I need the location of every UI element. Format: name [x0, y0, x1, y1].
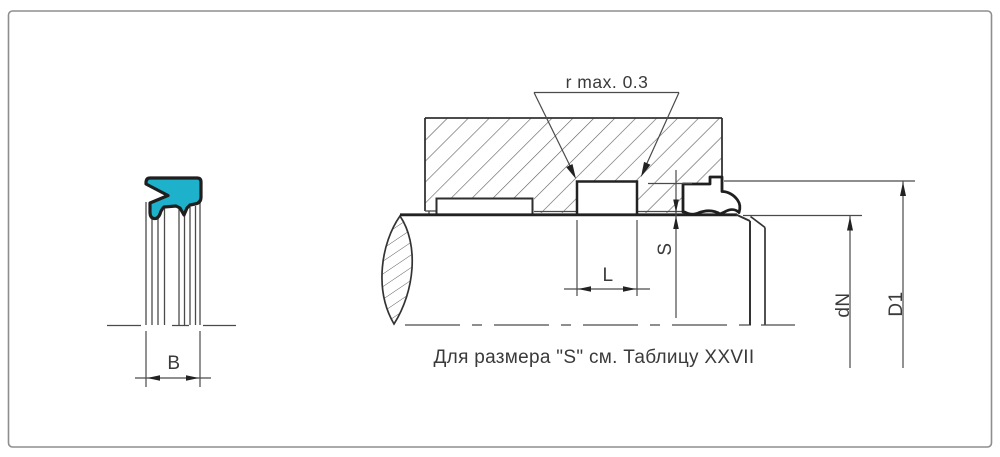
guide-strip [437, 199, 533, 215]
label-B: B [167, 353, 180, 374]
groove-outline [577, 182, 637, 215]
drawing-canvas: B [0, 0, 1000, 457]
label-S: S [655, 242, 676, 255]
technical-drawing-page: B [0, 0, 1000, 457]
note-text: Для размера "S" см. Таблицу XXVII [434, 347, 755, 368]
label-L: L [602, 265, 613, 286]
label-r-max: r max. 0.3 [566, 72, 649, 92]
label-dN: dN [833, 292, 854, 317]
image-border-frame [9, 11, 992, 447]
label-D1: D1 [886, 291, 907, 316]
